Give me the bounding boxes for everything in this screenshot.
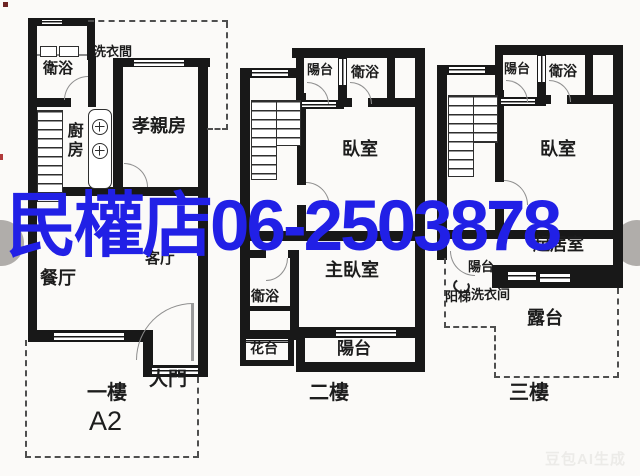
- door-arc: [549, 80, 571, 102]
- scan-artifact: [0, 154, 3, 160]
- wall-segment: [585, 45, 593, 102]
- wall-segment: [613, 45, 623, 288]
- room-label-bath: 衛浴: [549, 64, 577, 79]
- stairs: [473, 95, 498, 143]
- note-label-laundry: 洗衣间: [471, 288, 510, 302]
- scan-artifact: [3, 2, 8, 7]
- window: [508, 271, 536, 281]
- ai-generated-badge: 豆包AI生成: [545, 448, 626, 469]
- note-label-stairs: 阳梯: [445, 290, 471, 304]
- stairs: [448, 95, 474, 177]
- floorplan-image: 洗衣間 衛浴 廚房 孝親房 餐厅 客厅 大門 一樓 A2: [0, 0, 640, 476]
- dashed-boundary: [444, 326, 496, 328]
- dashed-boundary: [494, 376, 619, 378]
- room-label-balcony: 陽台: [504, 62, 530, 76]
- floor-label-third: 三樓: [509, 382, 549, 404]
- room-label-bedroom: 臥室: [540, 140, 576, 160]
- door-arc: [506, 80, 528, 102]
- room-label-terrace: 露台: [527, 309, 563, 329]
- window: [540, 273, 570, 283]
- dashed-boundary: [617, 288, 619, 378]
- dashed-boundary: [494, 326, 496, 378]
- wall-segment: [495, 45, 623, 55]
- window: [537, 56, 546, 82]
- wall-segment: [567, 95, 623, 104]
- window: [449, 66, 485, 74]
- store-phone-watermark: 民權店06-2503878: [6, 191, 559, 262]
